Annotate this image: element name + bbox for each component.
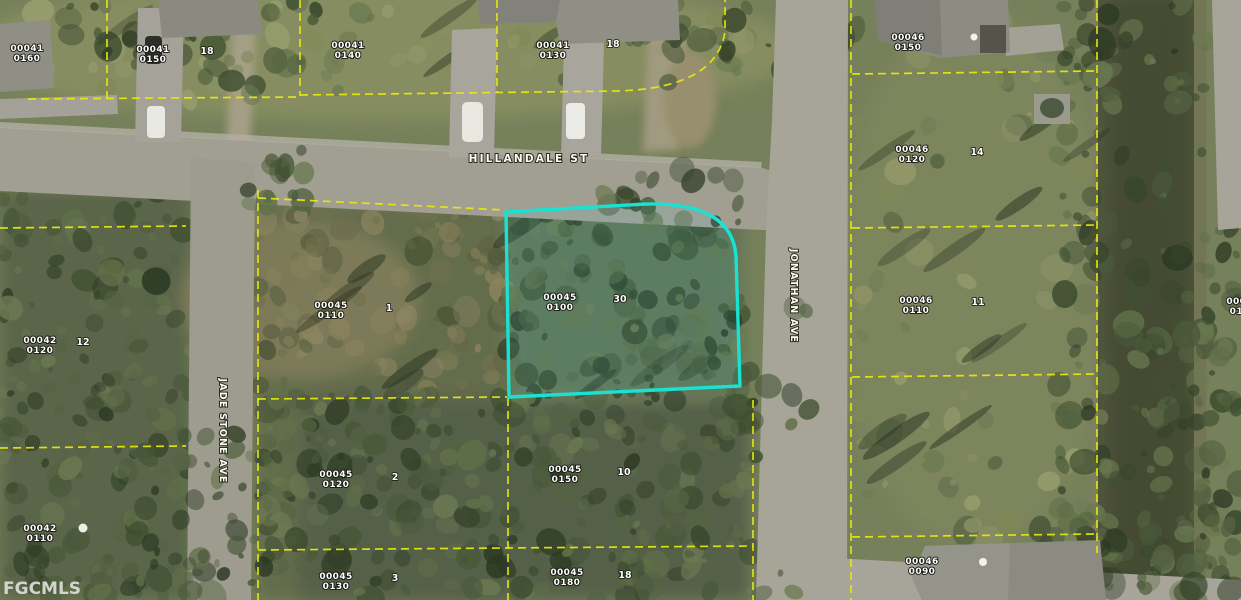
parcel-id-line: 0100 [547,303,574,313]
white-dot-object [979,558,987,566]
parcel-id-line: 0130 [540,51,567,61]
lot-number-marker: 18 [200,46,214,57]
parcel-id-line: 00046 [905,557,938,567]
car-white [147,106,165,138]
lot-number-marker: 14 [970,147,984,158]
house-roof-facet [478,0,560,24]
parcel-id-line: 0160 [14,54,41,64]
parcel-id-line: 00045 [548,465,581,475]
parcel-id-line: 00042 [23,336,56,346]
parcel-id-label: 00042 0110 [23,524,56,544]
parcel-id-line: 00041 [10,44,43,54]
parcel-id-line: 0120 [27,346,54,356]
parcel-id-line: 00041 [331,41,364,51]
parcel-id-line: 00045 [550,568,583,578]
parcel-id-line: 0140 [335,51,362,61]
street-label-jonathan: JONATHAN AVE [788,248,799,343]
driveway [561,42,604,158]
lot-number-marker: 18 [606,39,620,50]
lot-number-marker: 30 [613,294,627,305]
parcel-id-line: 0120 [323,480,350,490]
car-white [566,103,585,139]
parcel-id-line: 00046 [1226,297,1241,307]
lot-number-marker: 10 [617,467,631,478]
parcel-id-line: 00045 [319,572,352,582]
parcel-id-line: 0110 [318,311,345,321]
parcel-id-line: 00046 [895,145,928,155]
parcel-id-line: 0150 [552,475,579,485]
street-label-jade-stone: JADE STONE AVE [217,377,228,483]
lot-number-marker: 11 [971,297,984,308]
lot-number-marker: 12 [76,337,89,348]
car-white [462,102,483,142]
lot-number-marker: 3 [392,573,399,584]
street-label-hillandale: HILLANDALE ST [469,153,590,165]
house-roof [158,0,262,38]
white-dot-object [79,524,88,533]
parcel-id-label: 00041 0140 [331,41,364,61]
parcel-id-line: 0090 [909,567,936,577]
parcel-id-line: 0150 [895,43,922,53]
parcel-id-label: 00046 0150 [891,33,924,53]
parcel-id-line: 00045 [314,301,347,311]
lot-number-marker: 1 [386,303,393,314]
parcel-id-line: 0120 [899,155,926,165]
pad-tree-shadow [1040,98,1064,118]
parcel-id-line: 0110 [27,534,54,544]
parcel-id-line: 0110 [903,306,930,316]
parcel-id-line: 00042 [23,524,56,534]
parcel-id-line: 0180 [554,578,581,588]
garage-shadow [980,25,1006,53]
parcel-id-line: 00045 [319,470,352,480]
parcel-id-label: 00046 0090 [905,557,938,577]
parcel-id-line: 0150 [140,55,167,65]
lot-number-marker: 2 [392,472,399,483]
parcel-id-line: 00046 [891,33,924,43]
parcel-id-line: 00041 [536,41,569,51]
parcel-id-label: 00041 0160 [10,44,43,64]
aerial-map-image: HILLANDALE ST JADE STONE AVE JONATHAN AV… [0,0,1241,600]
parcel-id-line: 0130 [1230,307,1241,317]
watermark-fgcmls: FGCMLS [3,579,81,599]
parcel-id-line: 00045 [543,293,576,303]
parcel-id-line: 00041 [136,45,169,55]
lot-number-marker: 18 [618,570,632,581]
white-dot-object [971,34,978,41]
parcel-id-line: 00046 [899,296,932,306]
parcel-id-line: 0130 [323,582,350,592]
